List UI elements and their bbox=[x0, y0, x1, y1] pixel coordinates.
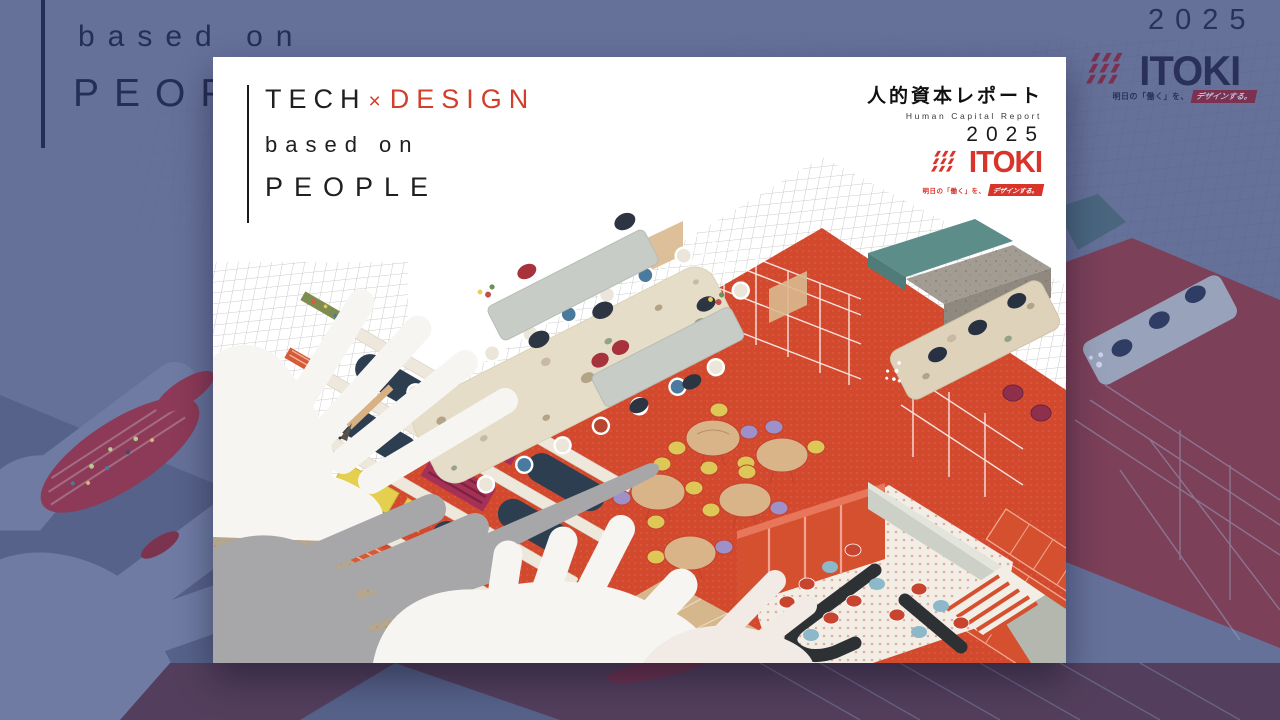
headline-line1: TECH×DESIGN bbox=[265, 84, 535, 115]
headline-design: DESIGN bbox=[390, 84, 536, 114]
report-title-en: Human Capital Report bbox=[906, 111, 1042, 121]
brand-tagline-text: 明日の「働く」を、 bbox=[923, 185, 986, 195]
brand-tagline: 明日の「働く」を、 デザインする。 bbox=[923, 184, 1043, 196]
headline-rule bbox=[247, 85, 249, 223]
itoki-hatch-icon bbox=[1086, 52, 1130, 88]
itoki-logo: ITOKI bbox=[931, 150, 1042, 175]
backdrop-itoki-logo: ITOKI 明日の「働く」を、 デザインする。 bbox=[1086, 52, 1256, 103]
backdrop-brand-tagline-highlight: デザインする。 bbox=[1191, 90, 1258, 103]
brand-tagline-highlight: デザインする。 bbox=[987, 184, 1043, 196]
headline-tech: TECH bbox=[265, 84, 367, 114]
report-cover-screenshot: based on PEOPLE 2025 ITOKI 明日の「働く」を、 デザイ… bbox=[0, 0, 1280, 720]
headline-line3: PEOPLE bbox=[265, 172, 439, 203]
backdrop-basedon-text: based on bbox=[78, 20, 305, 54]
backdrop-rule bbox=[41, 0, 45, 148]
backdrop-itoki-wordmark: ITOKI bbox=[1139, 54, 1240, 88]
itoki-wordmark: ITOKI bbox=[969, 150, 1042, 175]
headline-times-icon: × bbox=[367, 90, 390, 113]
backdrop-year: 2025 bbox=[1148, 4, 1257, 37]
report-cover-card: TECH×DESIGN based on PEOPLE 人的資本レポート Hum… bbox=[213, 57, 1066, 663]
headline-line2: based on bbox=[265, 132, 420, 158]
itoki-hatch-icon bbox=[931, 150, 961, 175]
report-title-jp: 人的資本レポート bbox=[867, 81, 1043, 108]
